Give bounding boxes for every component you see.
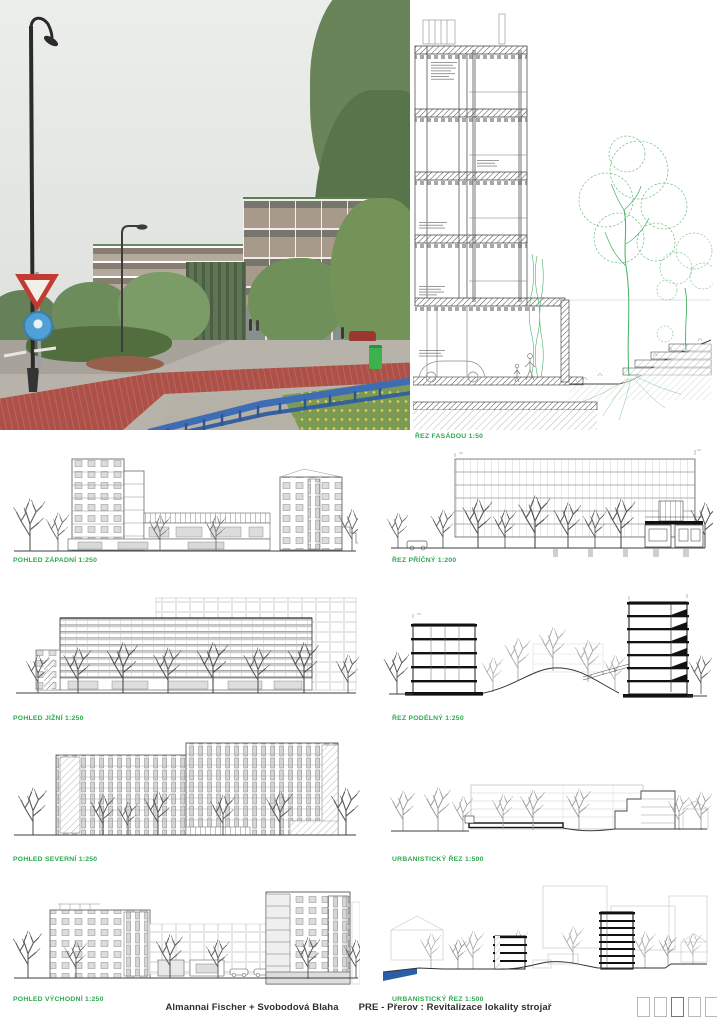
north-elevation-label: POHLED SEVERNÍ 1:250 bbox=[13, 856, 97, 863]
north-elevation-drawing bbox=[8, 733, 360, 853]
ghost-middle bbox=[533, 644, 603, 672]
road-markings bbox=[4, 348, 56, 356]
board-indicator-box-active bbox=[671, 997, 684, 1017]
board-indicator-box bbox=[637, 997, 650, 1017]
cross-section-label: ŘEZ PŘÍČNÝ 1:200 bbox=[392, 557, 456, 564]
small-gable bbox=[683, 801, 708, 829]
section-block-left bbox=[405, 624, 483, 696]
shared-path-sign bbox=[23, 311, 53, 341]
facade-section-label: ŘEZ FASÁDOU 1:50 bbox=[415, 433, 483, 440]
south-elevation-drawing bbox=[8, 592, 360, 714]
east-elevation-drawing bbox=[8, 872, 360, 994]
yield-sign-inner bbox=[24, 280, 50, 302]
floor-slabs bbox=[415, 46, 565, 306]
basement bbox=[427, 306, 467, 377]
long-section-drawing bbox=[383, 592, 713, 714]
subsoil bbox=[413, 410, 597, 430]
photo-visualization bbox=[0, 0, 410, 430]
cut-slab bbox=[469, 823, 563, 828]
west-elevation-label: POHLED ZÁPADNÍ 1:250 bbox=[13, 557, 97, 564]
ghost-context bbox=[391, 886, 707, 968]
board-indicator bbox=[637, 997, 717, 1017]
ground-line bbox=[383, 962, 707, 972]
cross-section-drawing bbox=[383, 445, 713, 559]
west-elevation-drawing bbox=[8, 447, 358, 559]
board-indicator-box bbox=[705, 997, 717, 1017]
facade-section-drawing bbox=[413, 4, 713, 430]
presentation-board: ŘEZ FASÁDOU 1:50 POHLED ZÁPADNÍ 1:250 bbox=[0, 0, 717, 1024]
urban-section-a-drawing bbox=[383, 733, 713, 853]
roof-railing bbox=[423, 14, 505, 44]
long-section-label: ŘEZ PODÉLNÝ 1:250 bbox=[392, 715, 464, 722]
balcony-strip bbox=[266, 894, 290, 982]
urban-section-a-label: URBANISTICKÝ ŘEZ 1:500 bbox=[392, 856, 484, 863]
urban-section-b-drawing bbox=[383, 868, 715, 996]
photo-overlay-lines bbox=[0, 0, 410, 430]
blue-railing bbox=[150, 381, 410, 430]
footer-project: PRE - Přerov : Revitalizace lokality str… bbox=[359, 1002, 552, 1013]
cut-tower-b bbox=[599, 912, 635, 969]
street-lamp-secondary bbox=[122, 224, 148, 352]
south-elevation-label: POHLED JIŽNÍ 1:250 bbox=[13, 715, 84, 722]
cut-tower-a bbox=[493, 936, 527, 969]
board-indicator-box bbox=[688, 997, 701, 1017]
section-block-right bbox=[623, 602, 693, 698]
footer-authors: Almannai Fischer + Svobodová Blaha bbox=[165, 1002, 338, 1013]
footer-title: Almannai Fischer + Svobodová BlahaPRE - … bbox=[0, 1002, 717, 1013]
board-indicator-box bbox=[654, 997, 667, 1017]
